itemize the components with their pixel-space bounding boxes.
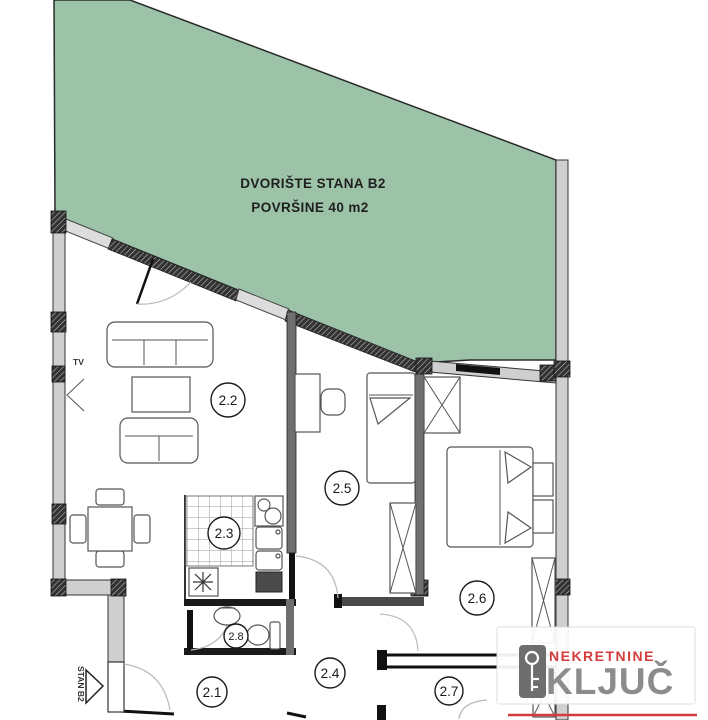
dining-table — [70, 489, 150, 567]
room-label-2-8: 2.8 — [228, 631, 243, 643]
room-label-2-6: 2.6 — [468, 591, 487, 606]
desk-chair — [321, 389, 345, 415]
toilet — [247, 622, 280, 649]
room-label-2-1: 2.1 — [203, 685, 222, 700]
hall-bedroom-wall — [337, 597, 424, 606]
bathroom-top-wall — [184, 599, 296, 606]
left-wall — [53, 213, 65, 595]
door-jamb-2 — [377, 650, 387, 670]
bathroom-right-wall — [286, 599, 294, 655]
coffee-table — [132, 377, 190, 412]
entrance-door — [108, 662, 170, 712]
entry-wall — [108, 595, 124, 662]
room-label-2-7: 2.7 — [440, 684, 459, 699]
washing-machine — [189, 568, 218, 596]
room-label-2-3: 2.3 — [215, 526, 234, 541]
room-label-2-5: 2.5 — [333, 481, 352, 496]
tv-mount — [67, 379, 84, 411]
room27-bottom-door-arc — [459, 700, 487, 719]
room27-door — [380, 614, 418, 651]
room-label-2-2: 2.2 — [219, 393, 238, 408]
kitchen-sink — [256, 527, 282, 570]
stove — [255, 496, 283, 526]
agency-logo: NEKRETNINE KLJUČ — [497, 627, 697, 715]
wardrobe-room25 — [390, 503, 416, 593]
entrance-label: STAN B2 — [76, 666, 86, 702]
floor-plan: DVORIŠTE STANA B2 POVRŠINE 40 m2 — [0, 0, 708, 720]
kitchen-counter-end — [256, 572, 282, 592]
bottom-wall-stub — [287, 713, 306, 717]
logo-brand-bottom: KLJUČ — [546, 660, 674, 702]
room-label-2-4: 2.4 — [321, 666, 340, 681]
wardrobe-room26-top — [424, 377, 460, 433]
tv-label: TV — [73, 357, 84, 367]
bathroom-sink — [214, 607, 240, 625]
entry-sill — [120, 711, 174, 714]
courtyard-label-line1: DVORIŠTE STANA B2 — [240, 176, 386, 191]
sofa — [107, 322, 213, 367]
courtyard-label-line2: POVRŠINE 40 m2 — [251, 200, 368, 215]
entrance-arrow — [86, 670, 103, 703]
single-bed — [367, 373, 415, 483]
double-bed — [447, 447, 553, 547]
door-jamb-3 — [377, 705, 386, 720]
loveseat — [120, 418, 198, 463]
key-icon — [519, 645, 546, 698]
room25-door — [289, 553, 338, 599]
desk — [295, 374, 320, 432]
